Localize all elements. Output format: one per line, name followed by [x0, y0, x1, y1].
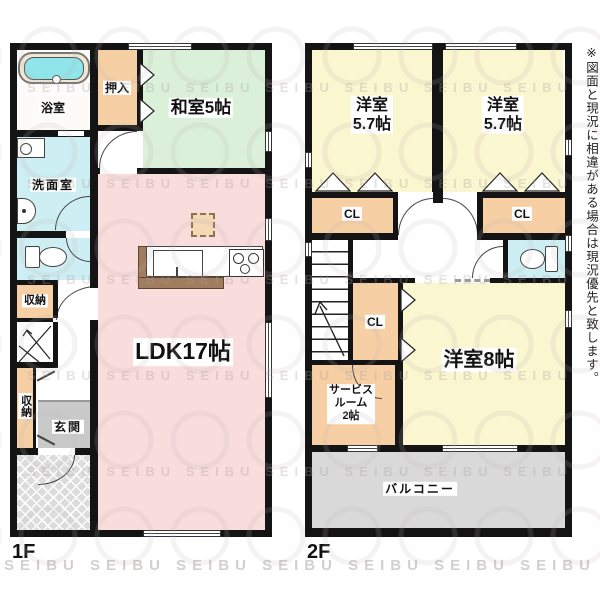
window: [565, 310, 572, 328]
room-label-bedroom-c: 洋室8帖: [441, 348, 516, 372]
folding-door-icon: [400, 287, 416, 318]
watermark-text: SEIBU SEIBU SEIBU SEIBU SEIBU SEIBU SEIB…: [0, 557, 600, 574]
room-label-oshiire: 押入: [103, 81, 131, 95]
wall: [305, 233, 398, 240]
wall: [53, 285, 58, 318]
wall: [353, 278, 398, 283]
kitchen-cabinet-icon: [138, 277, 224, 289]
label-line: ルーム: [329, 397, 373, 410]
wall: [10, 43, 17, 537]
floorplan-page: 浴室 押入 和室5帖 洗面室 収納 収納 玄関 LDK17帖: [0, 0, 600, 600]
room-label-genkan: 玄関: [52, 420, 84, 434]
closet-label-a: CL: [342, 207, 362, 221]
wall: [305, 360, 398, 365]
washer-pan-icon: [17, 138, 45, 158]
wall: [433, 192, 443, 203]
wall: [503, 240, 508, 278]
folding-door-icon: [357, 172, 393, 198]
room-label-bedroom-a: 洋室 5.7帖: [351, 96, 393, 134]
wall: [305, 528, 572, 537]
window: [353, 43, 433, 50]
toilet-bowl-icon: [520, 249, 545, 269]
room-label-storage-a: 収納: [22, 294, 48, 307]
room-label-service: サービス ルーム 2帖: [327, 384, 375, 424]
wall: [305, 43, 572, 50]
window: [347, 445, 378, 452]
genkan-step: [38, 400, 90, 402]
folding-door-icon: [139, 98, 155, 129]
wall: [75, 448, 90, 455]
door-arc: [443, 198, 478, 235]
window: [265, 218, 272, 241]
door-arc: [398, 198, 433, 235]
stairs-icon: [312, 240, 348, 360]
window: [442, 445, 518, 452]
label-line: 5.7帖: [484, 115, 522, 134]
room-label-storage-b: 収納: [18, 393, 31, 419]
floorplan-1f: 浴室 押入 和室5帖 洗面室 収納 収納 玄関 LDK17帖: [10, 43, 272, 537]
door-leaf: [37, 370, 56, 381]
door-arc: [99, 131, 137, 168]
wall: [305, 445, 565, 452]
closet-label-mid: CL: [365, 315, 385, 329]
wall: [305, 43, 312, 537]
window: [265, 131, 272, 152]
wall: [90, 168, 100, 174]
door-opening: [58, 131, 84, 136]
stairs-lines: [17, 322, 53, 362]
room-label-ldk: LDK17帖: [133, 338, 233, 366]
wall: [348, 240, 353, 362]
wall: [490, 278, 565, 283]
folding-door-icon: [524, 172, 560, 198]
wall: [477, 198, 483, 233]
window: [305, 242, 312, 257]
folding-door-icon: [139, 62, 155, 93]
wall: [17, 362, 58, 368]
kitchen-counter-icon: [146, 246, 263, 277]
balcony-label: バルコニー: [383, 482, 457, 496]
folding-door-icon: [400, 337, 416, 368]
stairs-arrow: [312, 240, 348, 360]
label-line: 洋室: [484, 96, 522, 115]
refrigerator-space: [191, 213, 215, 237]
wall: [393, 198, 398, 233]
room-label-bedroom-b: 洋室 5.7帖: [482, 96, 524, 134]
wall: [17, 448, 38, 455]
window: [143, 530, 221, 537]
label-line: 5.7帖: [353, 115, 391, 134]
closet-label-b: CL: [512, 207, 532, 221]
wall: [90, 125, 143, 131]
room-label-washitsu: 和室5帖: [169, 98, 233, 118]
window: [265, 322, 272, 398]
floorplan-2f: 洋室 5.7帖 洋室 5.7帖 CL CL CL 洋室8帖 サービス ルーム 2…: [305, 43, 572, 537]
label-line: 2帖: [329, 411, 373, 424]
floor-label-2f: 2F: [307, 541, 330, 564]
wall: [265, 43, 272, 537]
window: [445, 43, 517, 50]
wall: [10, 530, 272, 537]
wall: [137, 168, 265, 174]
wall: [33, 368, 36, 448]
label-line: サービス: [329, 384, 373, 397]
toilet-icon: [545, 246, 558, 272]
wall: [17, 318, 53, 322]
wall: [53, 322, 58, 362]
wall: [565, 43, 572, 537]
door-arc: [56, 286, 97, 320]
folding-door-icon: [482, 172, 518, 198]
stove-icon: [229, 249, 264, 277]
bathtub-icon: [18, 52, 90, 84]
open-wall-dashed: [455, 279, 490, 282]
label-line: 洋室: [353, 96, 391, 115]
wall: [17, 280, 58, 285]
window: [565, 235, 572, 252]
room-label-bath: 浴室: [39, 101, 67, 115]
toilet-bowl-icon: [39, 247, 67, 267]
wall: [395, 362, 403, 445]
wall: [17, 231, 66, 238]
window: [128, 43, 192, 50]
window: [305, 152, 312, 168]
disclaimer-note: ※図面と現況に相違がある場合は現況優先と致します。: [577, 45, 597, 415]
stairs-icon: [17, 322, 53, 362]
window: [565, 139, 572, 156]
room-label-senmen: 洗面室: [30, 178, 76, 192]
toilet-icon: [25, 246, 40, 268]
floor-label-1f: 1F: [12, 541, 35, 564]
wall: [432, 50, 443, 192]
wall: [90, 320, 98, 530]
door-arc: [472, 246, 503, 278]
folding-door-icon: [315, 172, 351, 198]
wall: [477, 233, 565, 240]
